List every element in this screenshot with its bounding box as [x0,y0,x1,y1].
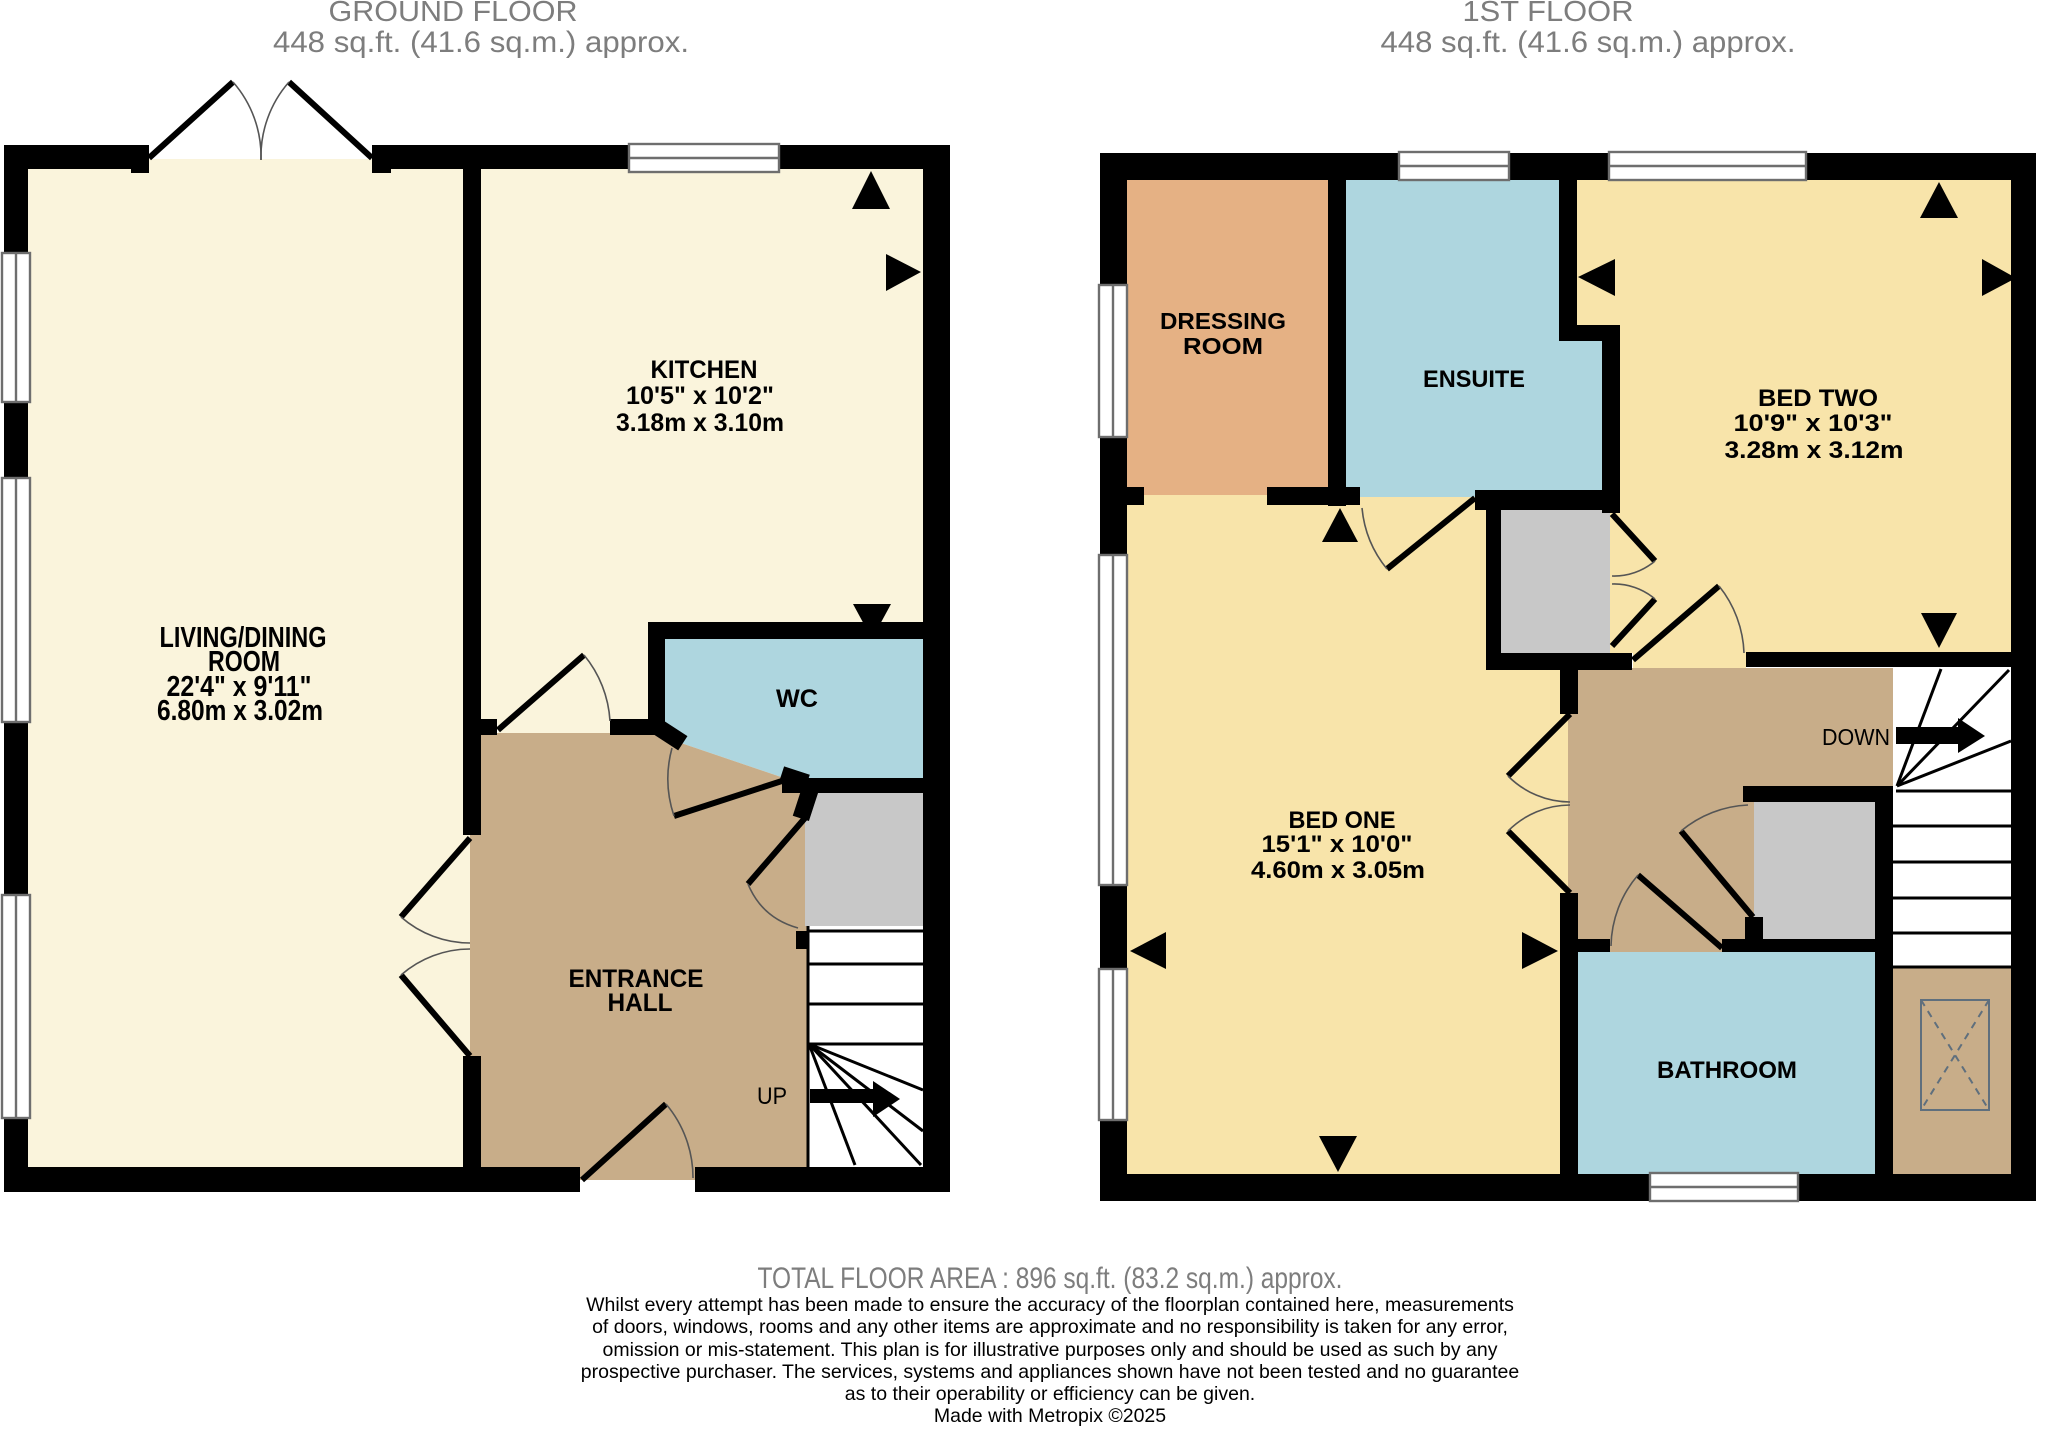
svg-text:BATHROOM: BATHROOM [1657,1057,1797,1084]
svg-text:prospective purchaser. The ser: prospective purchaser. The services, sys… [581,1361,1519,1383]
svg-text:BED TWO: BED TWO [1758,385,1878,412]
svg-text:ENSUITE: ENSUITE [1423,366,1525,393]
svg-text:3.28m x 3.12m: 3.28m x 3.12m [1725,437,1904,464]
svg-text:HALL: HALL [608,989,673,1017]
svg-text:WC: WC [776,685,818,713]
svg-text:as to their operability or eff: as to their operability or efficiency ca… [845,1383,1255,1405]
svg-text:15'1" x 10'0": 15'1" x 10'0" [1262,831,1413,858]
svg-text:Made with Metropix ©2025: Made with Metropix ©2025 [934,1405,1166,1427]
svg-text:Whilst every attempt has been: Whilst every attempt has been made to en… [586,1294,1514,1316]
svg-text:BED ONE: BED ONE [1289,807,1396,834]
svg-text:3.18m x 3.10m: 3.18m x 3.10m [616,409,784,437]
svg-text:KITCHEN: KITCHEN [651,356,758,384]
svg-text:GROUND FLOOR: GROUND FLOOR [329,0,578,28]
svg-text:448 sq.ft. (41.6 sq.m.) approx: 448 sq.ft. (41.6 sq.m.) approx. [1381,26,1796,59]
svg-text:1ST FLOOR: 1ST FLOOR [1463,0,1634,28]
svg-text:DRESSING: DRESSING [1160,308,1286,334]
svg-text:ROOM: ROOM [1183,333,1263,359]
svg-text:10'9" x 10'3": 10'9" x 10'3" [1734,410,1893,437]
svg-text:DOWN: DOWN [1822,724,1890,750]
svg-text:10'5" x 10'2": 10'5" x 10'2" [626,382,774,410]
svg-text:448 sq.ft. (41.6 sq.m.) approx: 448 sq.ft. (41.6 sq.m.) approx. [273,26,689,59]
svg-text:TOTAL FLOOR AREA : 896 sq.ft.: TOTAL FLOOR AREA : 896 sq.ft. (83.2 sq.m… [758,1262,1343,1295]
svg-text:4.60m x 3.05m: 4.60m x 3.05m [1251,857,1425,884]
svg-text:of doors, windows, rooms and a: of doors, windows, rooms and any other i… [592,1316,1508,1338]
svg-text:UP: UP [757,1083,787,1110]
svg-text:6.80m x 3.02m: 6.80m x 3.02m [157,695,323,727]
svg-text:omission or mis-statement. Thi: omission or mis-statement. This plan is … [603,1339,1498,1361]
